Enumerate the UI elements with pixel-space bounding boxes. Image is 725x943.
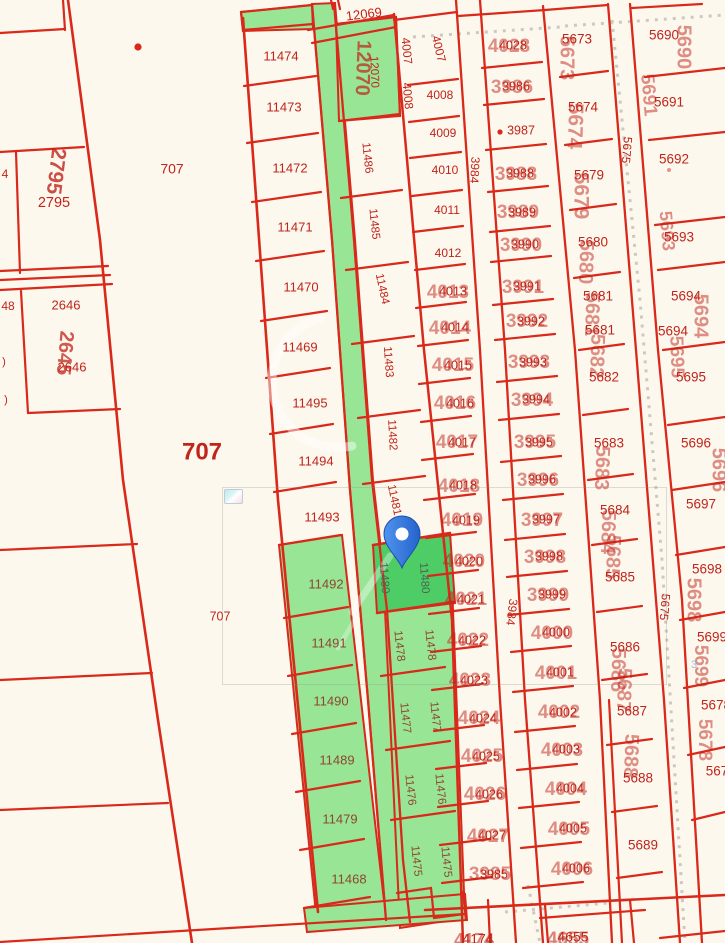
- parcel-boundary-line: [0, 275, 110, 280]
- survey-dot: [497, 129, 502, 134]
- parcel-label-3988: 3988: [506, 166, 534, 180]
- map-viewport[interactable]: 70770770742795279548264626452646))120691…: [0, 0, 725, 943]
- parcel-boundary-line: [692, 812, 725, 820]
- parcel-label-4028: 4028: [499, 38, 527, 52]
- parcel-label-2646: 2646: [52, 297, 81, 312]
- parcel-label-4015: 4015: [444, 358, 472, 372]
- parcel-label-11480: 11480: [377, 562, 391, 594]
- parcel-label-567: 567: [706, 764, 725, 779]
- pin-hole: [396, 528, 409, 541]
- parcel-label-3997: 3997: [532, 512, 560, 526]
- parcel-label-4005: 4005: [559, 821, 587, 835]
- parcel-boundary-line: [409, 116, 459, 122]
- parcel-boundary-line: [507, 571, 567, 577]
- parcel-label-5679: 5679: [569, 173, 592, 220]
- parcel-label-4009: 4009: [430, 126, 457, 140]
- parcel-label-4655: 4655: [557, 929, 588, 943]
- parcel-boundary-line: [521, 842, 581, 848]
- parcel-label-11470: 11470: [283, 279, 318, 294]
- parcel-boundary-line: [394, 12, 457, 20]
- parcel-label-4001: 4001: [546, 665, 574, 679]
- parcel-boundary-line: [630, 4, 702, 943]
- parcel-label-5696: 5696: [708, 448, 725, 493]
- parcel-boundary-line: [490, 226, 550, 232]
- parcel-boundary-line: [630, 900, 634, 943]
- parcel-label-4023: 4023: [460, 673, 488, 687]
- parcel-boundary-line: [545, 5, 608, 10]
- parcel-label-5678: 5678: [694, 719, 715, 761]
- parcel-label-3987: 3987: [507, 123, 535, 137]
- parcel-boundary-line: [421, 416, 471, 422]
- parcel-label-3984: 3984: [467, 156, 482, 184]
- parcel-boundary-line: [540, 910, 645, 918]
- parcel-label-11486: 11486: [359, 142, 374, 174]
- parcel-label-4008: 4008: [399, 82, 416, 110]
- parcel-boundary-line: [0, 803, 168, 810]
- parcel-boundary-line: [486, 144, 546, 150]
- parcel-label-4007: 4007: [398, 37, 415, 65]
- parcel-label-11471: 11471: [277, 219, 312, 234]
- parcel-label-4024: 4024: [469, 711, 497, 725]
- parcel-boundary-line: [425, 895, 725, 910]
- parcel-boundary-line: [247, 133, 318, 143]
- parcel-boundary-line: [503, 494, 563, 500]
- parcel-label-2646: 2646: [58, 359, 87, 374]
- parcel-label-3985: 3985: [480, 867, 508, 881]
- parcel-label-3992: 3992: [517, 314, 545, 328]
- parcel-label-3989: 3989: [508, 205, 536, 219]
- parcel-label-5680: 5680: [574, 239, 598, 284]
- parcel-label-4000: 4000: [542, 625, 570, 639]
- parcel-boundary-line: [413, 226, 463, 232]
- parcel-boundary-line: [0, 673, 152, 680]
- parcel-boundary-line: [28, 409, 120, 413]
- parcel-label-11495: 11495: [292, 395, 327, 410]
- parcel-label-5685: 5685: [601, 534, 625, 579]
- parcel-label-4007: 4007: [429, 34, 449, 64]
- parcel-label-11484: 11484: [373, 273, 391, 307]
- parcel-label-11490: 11490: [313, 693, 348, 708]
- parcel-label-4021: 4021: [457, 592, 485, 606]
- parcel-label-5678: 5678: [701, 698, 725, 713]
- parcel-label-11481: 11481: [385, 484, 403, 517]
- parcel-boundary-line: [0, 29, 65, 33]
- parcel-boundary-line: [515, 726, 575, 732]
- parcel-label-12070: 12070: [367, 56, 380, 88]
- survey-dot: [667, 168, 671, 172]
- parcel-label-3994: 3994: [522, 392, 550, 406]
- parcel-boundary-line: [410, 152, 461, 158]
- parcel-boundary-line: [412, 190, 462, 196]
- parcel-label-3990: 3990: [511, 237, 539, 251]
- parcel-label-4: 4: [2, 167, 9, 181]
- parcel-boundary-line: [632, 4, 702, 8]
- parcel-label-5675: 5675: [657, 593, 673, 621]
- parcel-label-11493: 11493: [304, 509, 339, 524]
- parcel-label-4013: 4013: [439, 284, 467, 298]
- parcel-boundary-line: [338, 0, 340, 9]
- parcel-label-5698: 5698: [692, 562, 722, 577]
- parcel-label-4019: 4019: [452, 513, 480, 527]
- parcel-boundary-line: [488, 186, 548, 192]
- parcel-boundary-line: [458, 10, 545, 16]
- dashed-survey-line: [565, 15, 725, 26]
- parcel-label-11489: 11489: [319, 752, 354, 767]
- parcel-label-5689: 5689: [628, 838, 658, 853]
- parcel-boundary-line: [612, 806, 657, 812]
- parcel-label-3998: 3998: [535, 549, 563, 563]
- parcel-boundary-line: [523, 882, 583, 888]
- parcel-label-5698: 5698: [683, 578, 705, 623]
- parcel-label-2795: 2795: [42, 147, 71, 196]
- parcel-label-3993: 3993: [519, 355, 547, 369]
- parcel-label-4014: 4014: [441, 320, 469, 334]
- parcel-boundary-line: [658, 262, 725, 270]
- parcel-boundary-line: [484, 99, 544, 105]
- parcel-boundary-line: [513, 686, 573, 692]
- parcel-label-4020: 4020: [455, 554, 483, 568]
- parcel-boundary-line: [0, 928, 230, 942]
- parcel-label-11468: 11468: [331, 871, 366, 886]
- parcel-boundary-line: [418, 340, 468, 346]
- parcel-label-4016: 4016: [446, 396, 474, 410]
- parcel-label-5687: 5687: [612, 667, 636, 712]
- parcel-boundary-line: [68, 0, 192, 943]
- parcel-label-3995: 3995: [525, 435, 553, 449]
- parcel-label-5682: 5682: [585, 333, 609, 378]
- parcel-boundary-line: [482, 62, 542, 68]
- parcel-label-4002: 4002: [549, 705, 577, 719]
- parcel-boundary-line: [597, 606, 642, 612]
- parcel-label-11480: 11480: [417, 562, 431, 594]
- survey-dot: [134, 43, 141, 50]
- parcel-label-5691: 5691: [636, 73, 661, 117]
- parcel-boundary-line: [517, 764, 577, 770]
- parcel-label-11479: 11479: [322, 811, 357, 826]
- parcel-label-5673: 5673: [556, 36, 578, 81]
- parcel-boundary-line: [519, 802, 579, 808]
- parcel-boundary-line: [676, 547, 725, 555]
- broken-image-placeholder-icon: [224, 489, 243, 504]
- parcel-label-11474: 11474: [263, 48, 298, 63]
- parcel-boundary-line: [617, 872, 662, 878]
- parcel-label-4006: 4006: [562, 861, 590, 875]
- parcel-label-4008: 4008: [427, 88, 454, 102]
- parcel-label-5675: 5675: [619, 136, 635, 164]
- parcel-label-4022: 4022: [458, 633, 486, 647]
- parcel-boundary-line: [649, 132, 725, 140]
- parcel-label-4004: 4004: [556, 781, 584, 795]
- parcel-label-5697: 5697: [686, 497, 716, 512]
- parcel-boundary-line: [16, 152, 20, 273]
- parcel-label-4027: 4027: [478, 828, 506, 842]
- parcel-label-4012: 4012: [435, 246, 462, 260]
- parcel-label-11472: 11472: [272, 160, 307, 175]
- parcel-label-4010: 4010: [432, 163, 459, 177]
- parcel-label-5674: 5674: [563, 102, 588, 150]
- parcel-boundary-line: [491, 256, 551, 262]
- parcel-label-11492: 11492: [308, 576, 343, 591]
- parcel-label-11482: 11482: [385, 419, 399, 451]
- parcel-label-5696: 5696: [681, 436, 711, 451]
- parcel-label-4025: 4025: [472, 749, 500, 763]
- parcel-label-3999: 3999: [538, 587, 566, 601]
- parcel-label-5688: 5688: [619, 733, 643, 778]
- parcel-label-4003: 4003: [552, 742, 580, 756]
- parcel-label-5692: 5692: [659, 152, 689, 167]
- parcel-boundary-line: [274, 482, 336, 492]
- parcel-label-5695: 5695: [665, 335, 687, 378]
- parcel-label-5699: 5699: [697, 630, 725, 645]
- parcel-label-707: 707: [160, 161, 184, 177]
- parcel-label-11483: 11483: [381, 346, 395, 378]
- parcel-label-2795: 2795: [38, 195, 70, 211]
- parcel-label-5694: 5694: [690, 294, 712, 339]
- parcel-label-4011: 4011: [434, 203, 460, 217]
- parcel-label-): ): [2, 356, 6, 368]
- parcel-label-11485: 11485: [366, 208, 381, 240]
- cadastral-map-svg: 70770770742795279548264626452646))120691…: [0, 0, 725, 943]
- parcel-boundary-line: [0, 284, 112, 290]
- parcel-label-3984: 3984: [503, 598, 520, 627]
- parcel-boundary-line: [244, 76, 316, 86]
- parcel-label-5693: 5693: [656, 210, 679, 252]
- parcel-boundary-line: [256, 251, 324, 261]
- parcel-label-5690: 5690: [673, 25, 695, 70]
- parcel-label-4174: 4174: [462, 931, 493, 943]
- parcel-boundary-line: [0, 266, 108, 271]
- parcel-label-5683: 5683: [590, 445, 614, 490]
- parcel-label-5681: 5681: [580, 291, 604, 336]
- parcel-boundary-line: [408, 79, 458, 85]
- parcel-label-11491: 11491: [311, 635, 346, 650]
- parcel-boundary-line: [0, 147, 84, 152]
- parcel-label-4018: 4018: [449, 478, 477, 492]
- parcel-label-707: 707: [182, 438, 222, 465]
- parcel-boundary-line: [660, 931, 725, 938]
- parcel-label-707: 707: [210, 609, 231, 623]
- parcel-label-4026: 4026: [475, 787, 503, 801]
- parcel-boundary-line: [668, 417, 725, 425]
- parcel-boundary-line: [583, 409, 628, 415]
- parcel-label-): ): [4, 394, 8, 406]
- parcel-label-3991: 3991: [513, 279, 541, 293]
- parcel-boundary-line: [422, 454, 473, 460]
- parcel-boundary-line: [415, 264, 465, 270]
- parcel-boundary-line: [505, 534, 565, 540]
- parcel-label-3996: 3996: [528, 472, 556, 486]
- parcel-boundary-line: [0, 544, 137, 550]
- parcel-label-4017: 4017: [448, 435, 476, 449]
- parcel-boundary-line: [63, 0, 65, 30]
- parcel-label-11469: 11469: [282, 339, 317, 354]
- parcel-boundary-line: [21, 291, 28, 413]
- parcel-boundary-line: [252, 192, 321, 202]
- parcel-label-11494: 11494: [298, 453, 333, 468]
- parcel-label-3: 3: [691, 659, 697, 671]
- parcel-label-3986: 3986: [502, 79, 530, 93]
- parcel-label-48: 48: [1, 299, 15, 313]
- parcel-boundary-line: [511, 646, 571, 652]
- parcel-label-11473: 11473: [266, 99, 301, 114]
